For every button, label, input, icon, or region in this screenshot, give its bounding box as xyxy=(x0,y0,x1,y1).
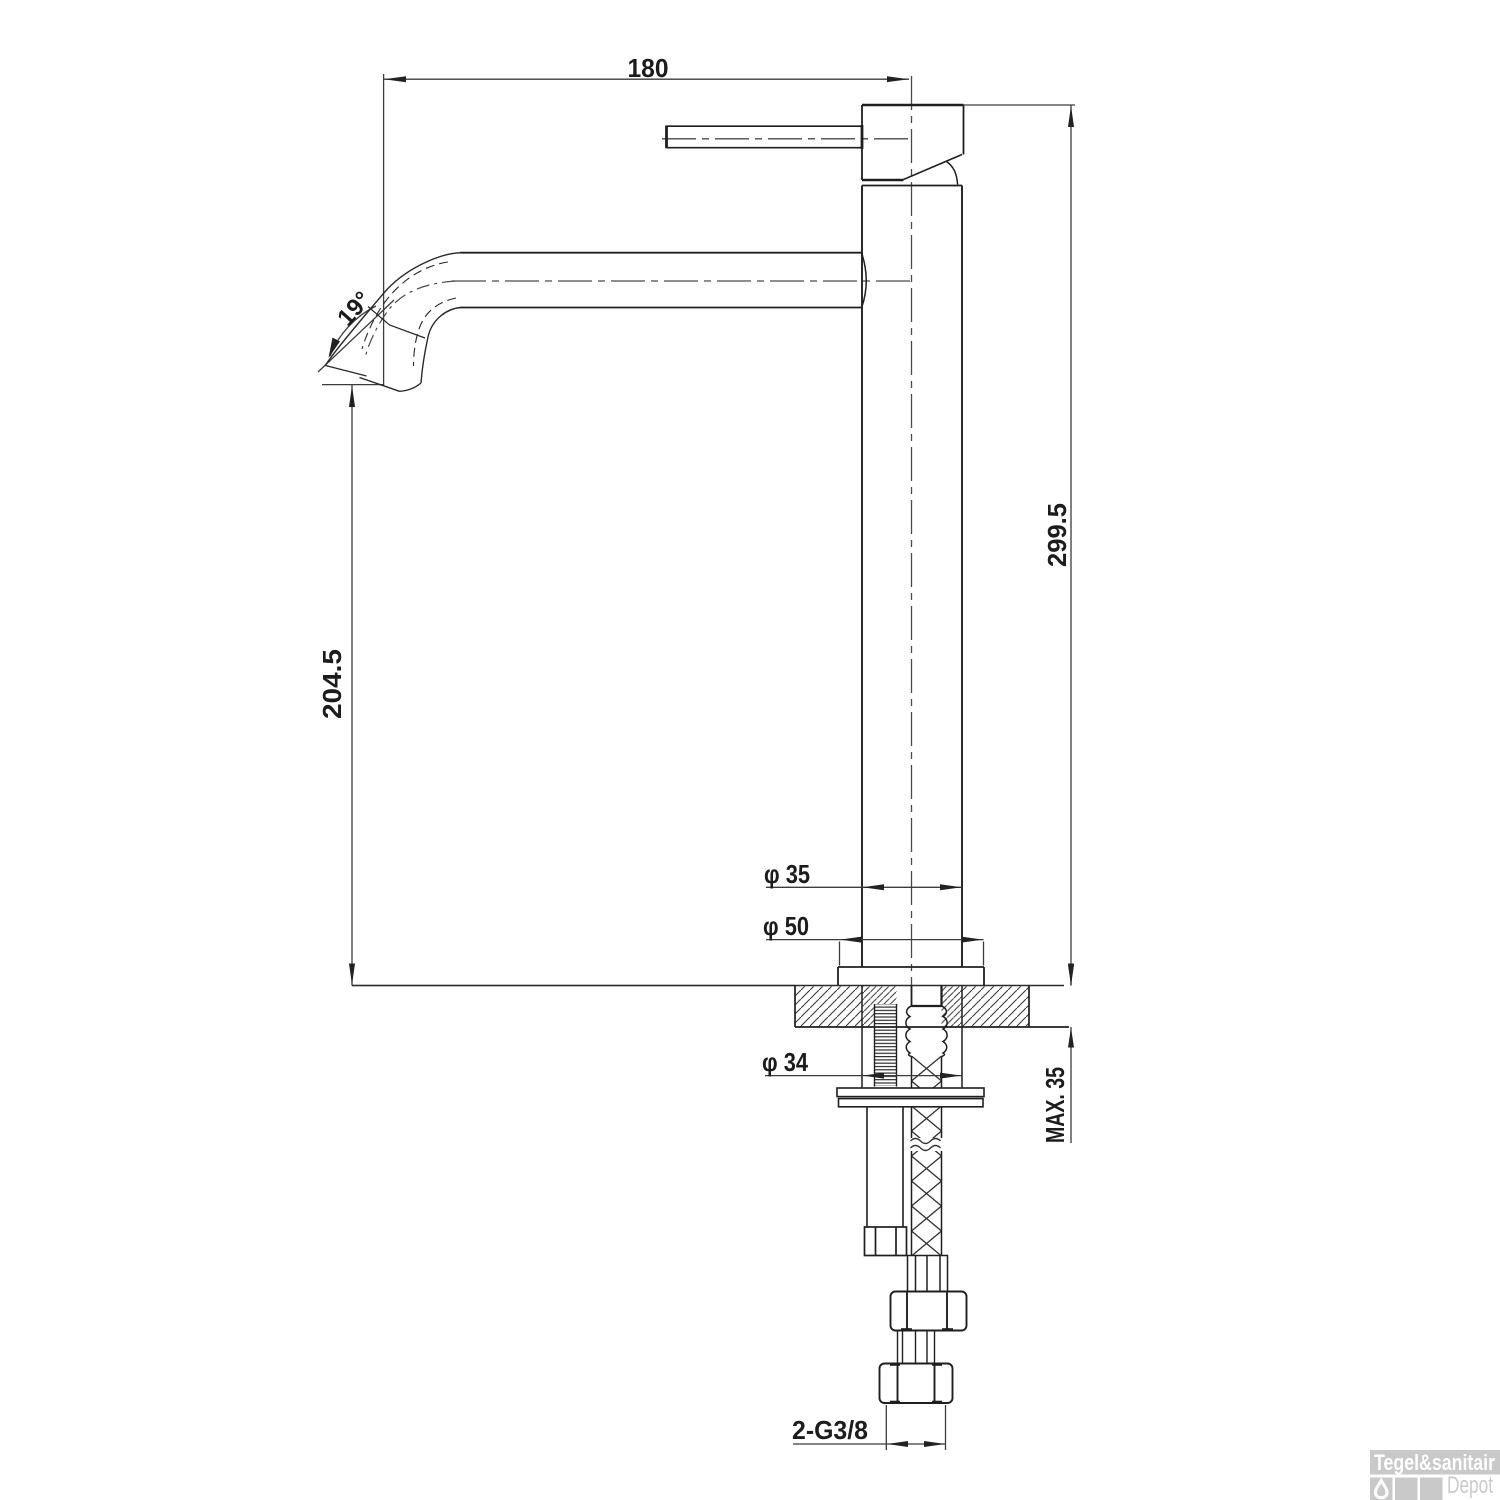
svg-text:Depot: Depot xyxy=(1447,1472,1493,1499)
svg-text:2-G3/8: 2-G3/8 xyxy=(792,1415,868,1445)
svg-text:299.5: 299.5 xyxy=(1042,503,1072,567)
svg-text:φ 35: φ 35 xyxy=(764,859,810,889)
svg-text:180: 180 xyxy=(628,53,669,83)
svg-text:204.5: 204.5 xyxy=(317,649,347,719)
svg-text:MAX. 35: MAX. 35 xyxy=(1040,1067,1070,1143)
svg-text:φ 50: φ 50 xyxy=(763,911,809,941)
svg-text:φ 34: φ 34 xyxy=(762,1047,808,1077)
